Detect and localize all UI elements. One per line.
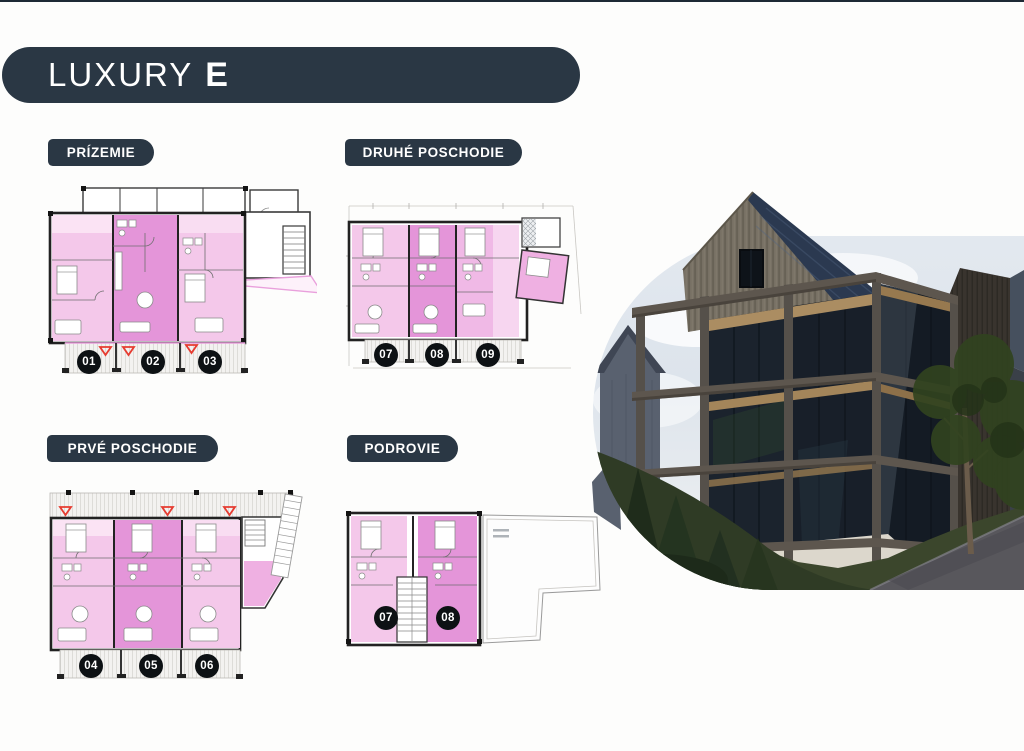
entrance-marker-icon (121, 345, 136, 357)
building-render (588, 150, 1024, 610)
entrance-marker-icon (222, 505, 237, 517)
brochure-page: LUXURY E PRÍZEMIE DRUHÉ POSCHODIE PRVÉ P… (0, 0, 1024, 751)
top-divider (0, 0, 1024, 2)
podrovie-floor-plan (343, 505, 605, 650)
section-label-podrovie: PODROVIE (347, 435, 458, 462)
section-label-prizemie: PRÍZEMIE (48, 139, 154, 166)
entrance-marker-icon (98, 345, 113, 357)
entrance-marker-icon (160, 505, 175, 517)
entrance-marker-icon (184, 343, 199, 355)
section-label-druhe-poschodie: DRUHÉ POSCHODIE (345, 139, 522, 166)
page-title-suffix: E (205, 56, 229, 95)
prve-poschodie-floor-plan (32, 486, 320, 696)
section-label-prve-poschodie: PRVÉ POSCHODIE (47, 435, 218, 462)
page-title-banner: LUXURY E (2, 47, 580, 103)
druhe-poschodie-floor-plan (343, 196, 583, 374)
prizemie-floor-plan (45, 182, 317, 380)
page-title: LUXURY (48, 56, 193, 94)
entrance-marker-icon (58, 505, 73, 517)
